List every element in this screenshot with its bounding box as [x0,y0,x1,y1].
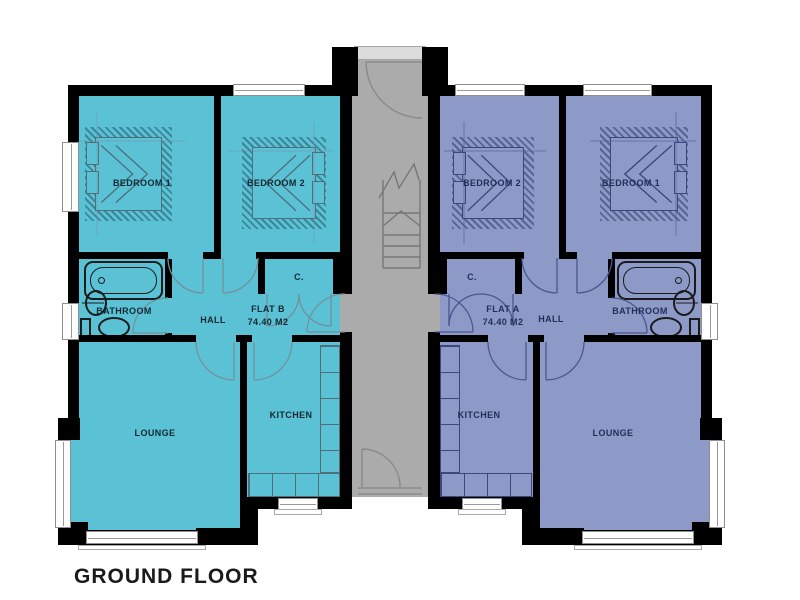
flat-b-entrance-opening [340,294,352,332]
window-sill [458,509,506,515]
wall [701,85,712,432]
flat-a-kitchen-label: KITCHEN [458,410,501,420]
kitchen-counter [320,345,340,473]
flat-a-name-area: FLAT A 74.40 M2 [483,303,524,329]
wall [214,96,221,252]
wall [236,335,252,342]
window [582,531,694,544]
wall [440,335,488,342]
flat-b-name-area: FLAT B 74.40 M2 [248,303,289,329]
sink-symbol [673,290,695,316]
flat-a-area-value: 74.40 M2 [483,316,524,329]
flat-b-lounge-label: LOUNGE [135,428,176,438]
flat-b-bedroom1-label: BEDROOM 1 [113,178,171,188]
flat-b-bathroom-label: BATHROOM [96,306,152,316]
duvet-fold-icon [610,137,678,211]
bedside-table [674,142,687,165]
bathtub-drain [98,277,105,284]
bedside-table [453,152,466,175]
wall [203,252,221,259]
wall [440,259,447,294]
window-sill [574,545,702,550]
kitchen-counter [440,473,532,497]
bedside-table [86,142,99,165]
duvet-fold-icon [95,137,162,211]
wall [559,96,566,252]
window [709,440,725,528]
kitchen-counter [248,473,340,497]
window-sill [78,545,206,550]
wall [515,259,522,294]
wall [68,85,79,432]
window [701,303,718,340]
page-title: GROUND FLOOR [74,565,259,589]
flat-b-hall-label: HALL [200,315,226,325]
bedside-table [86,171,99,194]
flat-b-kitchen-label: KITCHEN [270,410,313,420]
flat-a-bathroom-label: BATHROOM [612,306,668,316]
window [62,303,79,340]
kitchen-counter [440,345,460,473]
flat-a-entrance-opening [428,294,440,332]
bathtub-drain [675,277,682,284]
window [233,84,305,96]
wall [340,85,352,497]
bedside-table [674,171,687,194]
wall [165,259,172,298]
wall [258,259,265,294]
wall [440,252,524,259]
window [55,440,71,528]
wall [533,342,540,545]
flat-a-lounge-label: LOUNGE [593,428,634,438]
bedside-table [312,152,325,175]
wall [559,252,577,259]
flat-b-cupboard-label: C. [294,272,304,282]
window [583,84,652,96]
wall [333,259,340,294]
wall [612,252,701,259]
wall [79,252,168,259]
flat-a-cupboard-label: C. [467,272,477,282]
wall [584,335,701,342]
flat-b-area-value: 74.40 M2 [248,316,289,329]
flat-a-bedroom1-label: BEDROOM 1 [602,178,660,188]
window [86,531,198,544]
wall [332,47,358,96]
wall [292,335,340,342]
wall [428,85,440,497]
wall [256,252,340,259]
stairwell-floor [352,58,428,497]
entrance-porch [354,46,426,60]
bed-symbol [600,127,688,221]
wall [79,335,196,342]
wall [240,342,247,545]
flat-a-bedroom2-label: BEDROOM 2 [463,178,521,188]
window-sill [274,509,322,515]
wall [68,85,352,96]
bedside-table [312,181,325,204]
wall [422,47,448,96]
window [455,84,525,96]
floorplan: BEDROOM 1 BEDROOM 2 BATHROOM HALL C. LOU… [0,0,800,600]
flat-b-bedroom2-label: BEDROOM 2 [247,178,305,188]
flat-b-name: FLAT B [248,303,289,316]
flat-a-hall-label: HALL [538,314,564,324]
bed-symbol [85,127,172,221]
window [62,142,79,212]
wall [528,335,544,342]
wall [608,259,615,298]
flat-a-name: FLAT A [483,303,524,316]
